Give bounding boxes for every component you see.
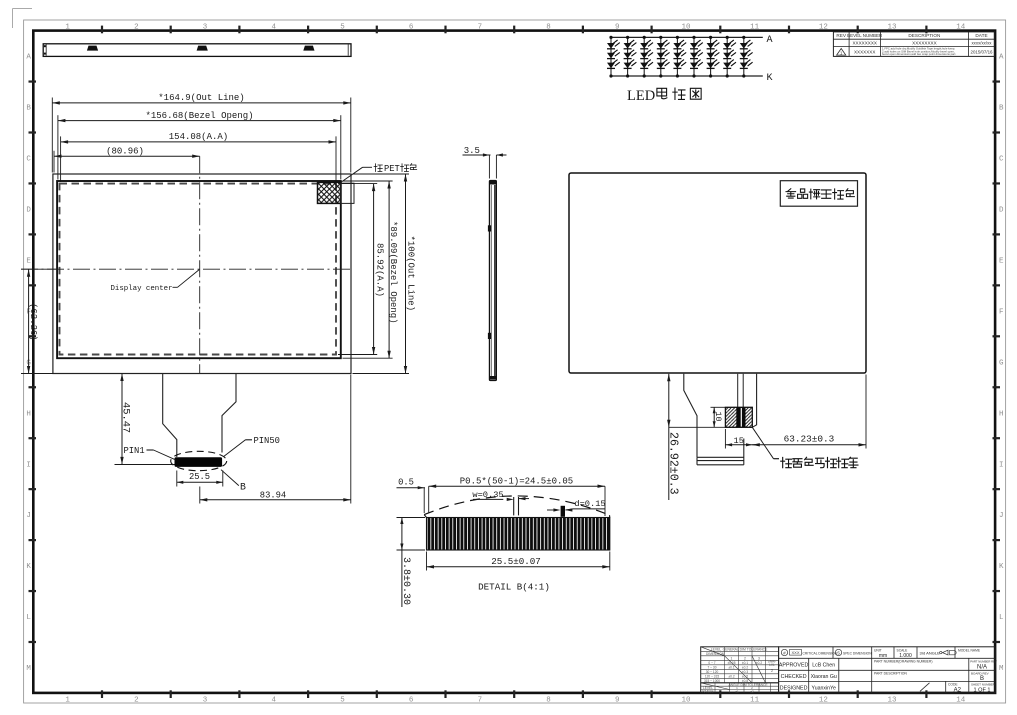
svg-text:15: 15 — [734, 436, 744, 446]
svg-text:Display center: Display center — [110, 285, 172, 293]
svg-text:±0.5: ±0.5 — [742, 674, 748, 678]
svg-text:F: F — [999, 308, 1004, 316]
svg-text:XXXXXXXX: XXXXXXXX — [852, 41, 877, 46]
svg-text:D: D — [999, 207, 1004, 215]
svg-text:26.92±0.3: 26.92±0.3 — [666, 432, 679, 495]
svg-text:7 ~ 30: 7 ~ 30 — [708, 665, 717, 669]
svg-text:LVL: LVL — [769, 663, 775, 667]
svg-text:D: D — [26, 207, 31, 215]
svg-text:SPEC DIMENSION: SPEC DIMENSION — [843, 651, 872, 655]
svg-text:DATE: DATE — [975, 33, 987, 38]
svg-text:14: 14 — [956, 697, 966, 705]
svg-text:45.47: 45.47 — [119, 402, 131, 433]
svg-text:±2: ±2 — [750, 689, 754, 693]
svg-text:P0.5*(50-1)=24.5±0.05: P0.5*(50-1)=24.5±0.05 — [460, 477, 573, 487]
svg-text:0.5: 0.5 — [398, 478, 414, 488]
svg-text:12: 12 — [819, 697, 828, 705]
svg-text:CODE: CODE — [948, 682, 958, 686]
svg-text:25.5: 25.5 — [189, 472, 210, 482]
svg-text:B: B — [980, 676, 984, 682]
svg-text:±0.3: ±0.3 — [742, 670, 748, 674]
svg-text:A: A — [26, 54, 31, 62]
svg-text:J: J — [26, 512, 31, 520]
svg-text:GENERAL DIM TOLERANCE: GENERAL DIM TOLERANCE — [723, 647, 769, 651]
svg-text:B: B — [999, 105, 1004, 113]
svg-text:11: 11 — [750, 697, 760, 705]
svg-text:PIN1: PIN1 — [124, 446, 145, 456]
svg-text:83.94: 83.94 — [260, 490, 286, 500]
svg-text:9: 9 — [615, 697, 620, 705]
svg-text:1: 1 — [65, 697, 70, 705]
svg-text:0 ~ 7: 0 ~ 7 — [708, 661, 715, 665]
svg-text:A: A — [999, 54, 1004, 62]
svg-text:5: 5 — [340, 23, 345, 31]
svg-text:DESCRIPTION: DESCRIPTION — [908, 33, 940, 38]
svg-text:LEVEL: LEVEL — [711, 647, 722, 651]
svg-text:B: B — [240, 482, 246, 493]
svg-text:CHECKED: CHECKED — [781, 674, 807, 680]
svg-text:2: 2 — [134, 697, 139, 705]
svg-text:XXXXXXXX: XXXXXXXX — [912, 41, 937, 46]
svg-text:315 ~ 1000: 315 ~ 1000 — [704, 679, 720, 683]
svg-text:63.23±0.3: 63.23±0.3 — [784, 433, 835, 444]
svg-text:12: 12 — [819, 23, 828, 31]
svg-text:±0.1: ±0.1 — [742, 661, 748, 665]
svg-text:13: 13 — [888, 23, 898, 31]
svg-text:14: 14 — [956, 23, 966, 31]
svg-text:N/A: N/A — [977, 665, 987, 671]
svg-text:C: C — [26, 156, 31, 164]
svg-text:2015/07/16: 2015/07/16 — [971, 50, 994, 55]
svg-text:XXX: XXX — [791, 650, 799, 655]
svg-text:1.000: 1.000 — [899, 653, 912, 659]
svg-text:9: 9 — [615, 23, 620, 31]
svg-text:REV: REV — [836, 33, 847, 38]
svg-text:3: 3 — [758, 656, 760, 660]
svg-text:PART NUMBER REV: PART NUMBER REV — [970, 659, 997, 663]
svg-text:10: 10 — [713, 412, 723, 422]
svg-text:PIN50: PIN50 — [254, 436, 280, 446]
svg-text:mm: mm — [879, 653, 887, 659]
svg-text:APPROVED: APPROVED — [779, 663, 809, 669]
svg-text:±0.2: ±0.2 — [728, 674, 734, 678]
svg-text:DESIGNED: DESIGNED — [780, 685, 808, 691]
svg-text:K: K — [999, 563, 1004, 571]
svg-text:UNIT: UNIT — [874, 648, 882, 652]
svg-text:6: 6 — [409, 23, 414, 31]
svg-text:10: 10 — [681, 697, 691, 705]
svg-text:3: 3 — [203, 697, 208, 705]
svg-text:YuanxinYe: YuanxinYe — [812, 685, 836, 691]
svg-text:K: K — [26, 563, 31, 571]
svg-text:bezel open dimensions;add two: bezel open dimensions;add two snap point… — [882, 52, 956, 56]
svg-text:H: H — [999, 410, 1004, 418]
svg-text:ANGLE DIM TOLERANCE: ANGLE DIM TOLERANCE — [728, 683, 768, 687]
svg-text:3: 3 — [203, 23, 208, 31]
svg-text:L: L — [999, 614, 1004, 622]
svg-text:xxxx/xx/xx: xxxx/xx/xx — [971, 41, 992, 46]
svg-text:(62.26): (62.26) — [28, 303, 38, 341]
svg-text:A: A — [767, 35, 773, 46]
svg-text:*156.68(Bezel Openg): *156.68(Bezel Openg) — [145, 111, 253, 121]
svg-text:154.08(A.A): 154.08(A.A) — [169, 132, 228, 142]
svg-text:4: 4 — [271, 697, 276, 705]
svg-text:A2: A2 — [954, 687, 962, 693]
svg-text:8: 8 — [546, 23, 551, 31]
svg-text:DIMENSION: DIMENSION — [706, 652, 725, 656]
svg-text:10: 10 — [681, 23, 691, 31]
svg-text:M: M — [26, 665, 31, 673]
svg-text:1: 1 — [731, 656, 733, 660]
svg-text:BEVEL NUMBER: BEVEL NUMBER — [847, 33, 883, 38]
svg-text:MODEL NAME: MODEL NAME — [958, 648, 981, 652]
svg-text:11: 11 — [750, 23, 760, 31]
svg-text:LcB Chen: LcB Chen — [812, 663, 835, 669]
svg-text:*100(Out Line): *100(Out Line) — [405, 236, 415, 312]
svg-text:M: M — [999, 665, 1004, 673]
svg-text:(80.96): (80.96) — [106, 147, 144, 157]
svg-text:2: 2 — [771, 669, 773, 673]
svg-text:2: 2 — [744, 656, 746, 660]
svg-text:25.5±0.07: 25.5±0.07 — [491, 556, 541, 567]
svg-text:E: E — [26, 257, 31, 265]
svg-text:I: I — [999, 461, 1004, 469]
svg-text:85.92(A.A): 85.92(A.A) — [375, 243, 385, 297]
svg-text:*89.09(Bezel Openg): *89.09(Bezel Openg) — [388, 221, 398, 324]
svg-text:±0.05: ±0.05 — [728, 661, 736, 665]
svg-text:PET: PET — [384, 164, 400, 174]
svg-text:E: E — [999, 257, 1004, 265]
svg-text:6: 6 — [409, 697, 414, 705]
svg-text:8: 8 — [546, 697, 551, 705]
svg-text:Xiaoran Gu: Xiaoran Gu — [811, 674, 837, 680]
svg-text:1 OF 1: 1 OF 1 — [973, 687, 990, 693]
svg-text:RANGE: RANGE — [702, 689, 713, 693]
svg-text:J: J — [999, 512, 1004, 520]
svg-text:I: I — [26, 461, 31, 469]
svg-text:PART DESCRIPTION: PART DESCRIPTION — [874, 671, 907, 675]
svg-text:7: 7 — [478, 697, 483, 705]
svg-text:XXXXXXX: XXXXXXX — [854, 50, 875, 55]
svg-text:d=0.15: d=0.15 — [574, 499, 605, 509]
svg-text:±0.2: ±0.2 — [756, 661, 762, 665]
svg-text:13: 13 — [888, 697, 898, 705]
svg-text:5: 5 — [340, 697, 345, 705]
svg-text:S: S — [837, 650, 840, 655]
svg-text:SCALE: SCALE — [897, 648, 909, 652]
svg-text:*164.9(Out Line): *164.9(Out Line) — [158, 93, 244, 103]
svg-text:4: 4 — [271, 23, 276, 31]
svg-text:120 ~ 315: 120 ~ 315 — [705, 674, 719, 678]
svg-text:3.8±0.30: 3.8±0.30 — [400, 557, 411, 605]
svg-text:±1: ±1 — [735, 689, 739, 693]
svg-text:K: K — [767, 73, 773, 84]
svg-text:CRITICAL DIMENSION: CRITICAL DIMENSION — [803, 651, 838, 655]
svg-text:H: H — [26, 410, 31, 418]
svg-text:w=0.35: w=0.35 — [472, 490, 503, 500]
svg-text:3rd ANGLE: 3rd ANGLE — [920, 651, 941, 656]
svg-text:DETAIL B(4:1): DETAIL B(4:1) — [478, 581, 550, 592]
svg-text:±0.1: ±0.1 — [728, 665, 734, 669]
svg-text:BOARD REV: BOARD REV — [971, 671, 989, 675]
svg-text:SHEET NUMBER: SHEET NUMBER — [971, 682, 996, 686]
svg-text:3.5: 3.5 — [464, 146, 480, 156]
svg-text:L: L — [26, 614, 31, 622]
svg-text:30 ~ 120: 30 ~ 120 — [706, 670, 719, 674]
svg-text:C: C — [999, 156, 1004, 164]
svg-text:7: 7 — [478, 23, 483, 31]
svg-text:2: 2 — [134, 23, 139, 31]
svg-text:PART NUMBER(DRAWING NUMBER): PART NUMBER(DRAWING NUMBER) — [874, 659, 932, 663]
svg-text:G: G — [999, 359, 1004, 367]
svg-text:B: B — [26, 105, 31, 113]
svg-text:±0.2: ±0.2 — [742, 665, 748, 669]
svg-text:1: 1 — [65, 23, 70, 31]
svg-text:LED: LED — [627, 88, 655, 104]
